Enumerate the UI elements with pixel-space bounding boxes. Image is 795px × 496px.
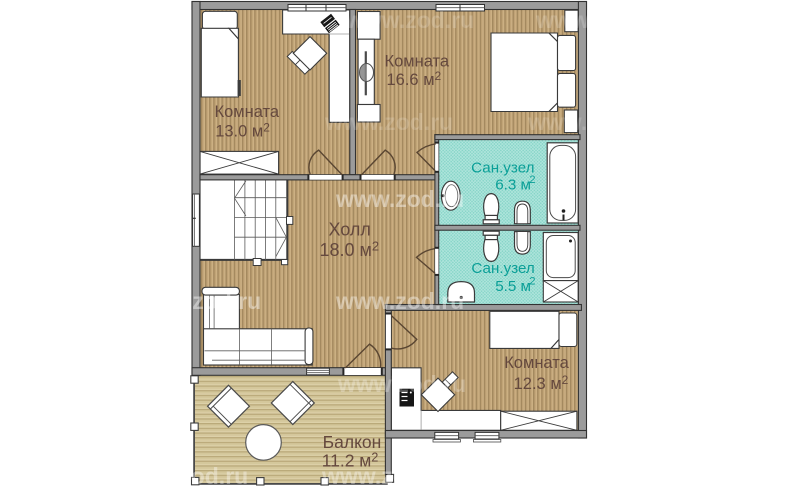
svg-text:16.6 м2: 16.6 м2 [387,69,442,89]
svg-text:www.zod.ru: www.zod.ru [527,109,656,135]
svg-text:www.zod.ru: www.zod.ru [335,186,464,212]
svg-text:11.2 м2: 11.2 м2 [322,451,379,471]
svg-text:Сан.узел: Сан.узел [471,260,534,277]
svg-text:2: 2 [529,276,535,288]
svg-text:Холл: Холл [328,220,370,240]
svg-text:www.zod.ru: www.zod.ru [337,371,466,397]
svg-text:5.5 м: 5.5 м [495,278,531,295]
svg-text:www.zod.ru: www.zod.ru [132,288,261,314]
svg-text:Комната: Комната [215,103,280,121]
svg-text:www.zod.ru: www.zod.ru [324,109,453,135]
svg-text:12.3 м2: 12.3 м2 [514,373,569,393]
svg-text:Сан.узел: Сан.узел [471,159,534,176]
svg-text:6.3 м: 6.3 м [495,177,531,194]
svg-text:Балкон: Балкон [323,432,382,452]
svg-text:Комната: Комната [385,53,450,71]
svg-text:www.zod.ru: www.zod.ru [119,463,248,489]
svg-text:Комната: Комната [504,354,569,372]
svg-text:www.zod.ru: www.zod.ru [535,7,664,33]
svg-text:18.0 м2: 18.0 м2 [319,239,379,261]
svg-text:www.zod.ru: www.zod.ru [335,288,464,314]
svg-text:2: 2 [529,174,535,186]
svg-text:www.zod.ru: www.zod.ru [345,7,474,33]
svg-text:13.0 м2: 13.0 м2 [215,121,270,141]
